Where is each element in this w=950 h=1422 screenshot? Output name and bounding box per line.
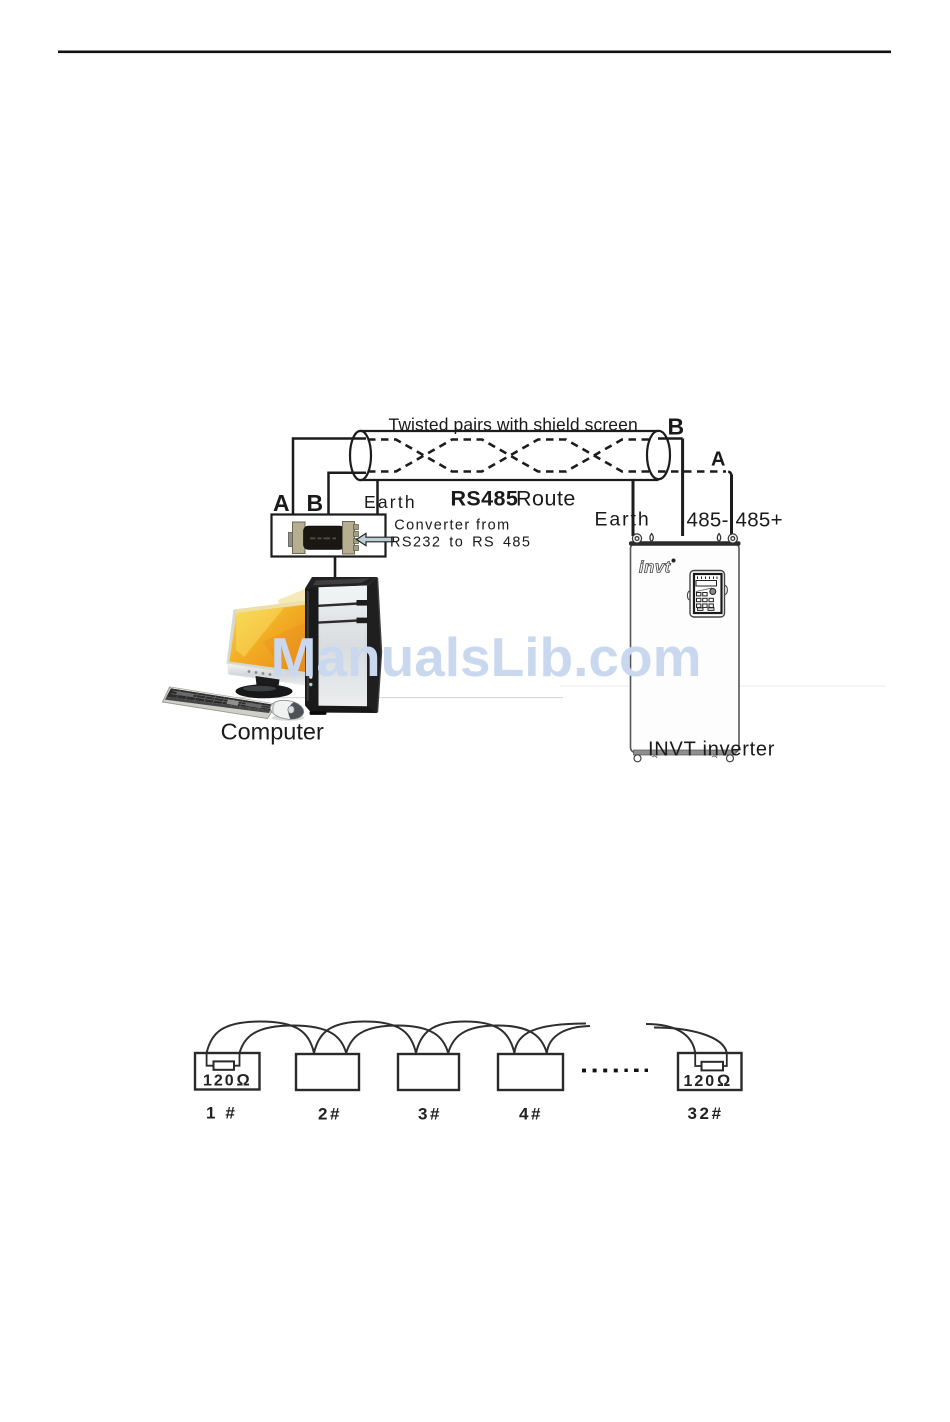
svg-text:Twisted pairs with shield scre: Twisted pairs with shield screen <box>389 415 638 435</box>
svg-text:2#: 2# <box>318 1105 342 1124</box>
svg-text:Earth: Earth <box>364 492 417 512</box>
svg-text:3#: 3# <box>418 1105 442 1124</box>
svg-text:A: A <box>273 490 290 516</box>
svg-text:invt: invt <box>639 559 672 577</box>
svg-text:120: 120 <box>203 1073 236 1090</box>
svg-text:32#: 32# <box>688 1104 724 1123</box>
svg-text:Ω: Ω <box>717 1072 730 1090</box>
svg-text:RS232 to RS 485: RS232 to RS 485 <box>390 534 531 550</box>
svg-text:RS485: RS485 <box>451 487 519 511</box>
svg-text:B: B <box>307 490 324 516</box>
svg-text:Earth: Earth <box>595 509 651 531</box>
svg-text:485-: 485- <box>687 508 729 531</box>
svg-text:485+: 485+ <box>736 508 783 531</box>
svg-text:ManualsLib.com: ManualsLib.com <box>271 626 702 688</box>
svg-text:Converter from: Converter from <box>394 517 510 533</box>
svg-text:Ω: Ω <box>237 1072 250 1090</box>
svg-text:INVT inverter: INVT inverter <box>648 738 775 760</box>
svg-text:1 #: 1 # <box>206 1104 237 1123</box>
svg-text:B: B <box>668 414 685 440</box>
svg-text:120: 120 <box>684 1073 717 1090</box>
svg-text:4#: 4# <box>519 1105 543 1124</box>
svg-text:Route: Route <box>516 487 576 511</box>
svg-text:Computer: Computer <box>221 719 324 745</box>
svg-text:A: A <box>711 449 725 471</box>
